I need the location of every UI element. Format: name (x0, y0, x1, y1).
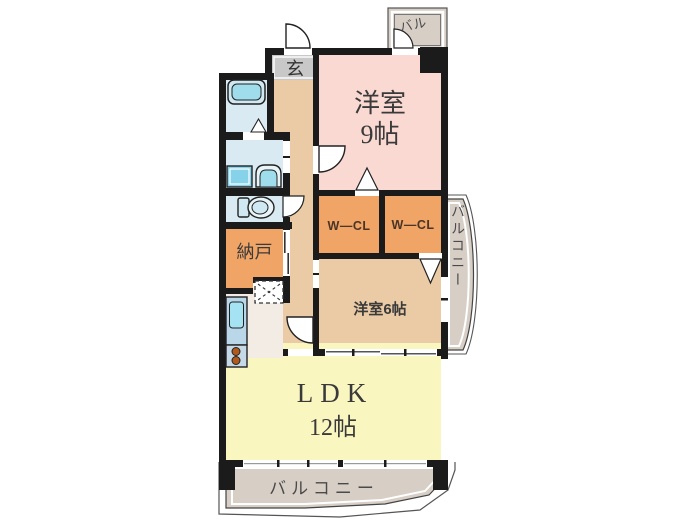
western9-label: 洋室 9帖 (330, 88, 430, 150)
refrigerator-space-icon (255, 281, 283, 303)
toilet-icon (238, 197, 274, 218)
washing-machine-pan-icon (227, 166, 252, 187)
ldk-size: 12帖 (283, 407, 383, 442)
western9-size: 9帖 (330, 119, 430, 150)
western6-label: 洋室6帖 (319, 298, 441, 319)
floor-plan: 玄 洋室 9帖 W—CL W—CL 納戸 洋室6帖 LDK 12帖 バルコニー … (0, 0, 700, 525)
western9-name: 洋室 (330, 88, 430, 119)
floor-plan-drawing (0, 0, 700, 525)
right-balcony-label: バルコニー (446, 204, 466, 334)
washbasin-icon (256, 165, 281, 187)
stove-icon (226, 345, 247, 367)
bathtub-icon (228, 80, 265, 104)
kitchen-sink-icon (226, 297, 247, 345)
storage-label: 納戸 (226, 238, 283, 264)
bottom-balcony-label: バルコニー (244, 474, 404, 499)
wcl1-label: W—CL (319, 219, 379, 233)
ldk-label: LDK (283, 378, 387, 409)
wcl2-label: W—CL (385, 218, 441, 232)
entrance-door-arc (286, 24, 310, 48)
entrance-label: 玄 (286, 55, 304, 81)
